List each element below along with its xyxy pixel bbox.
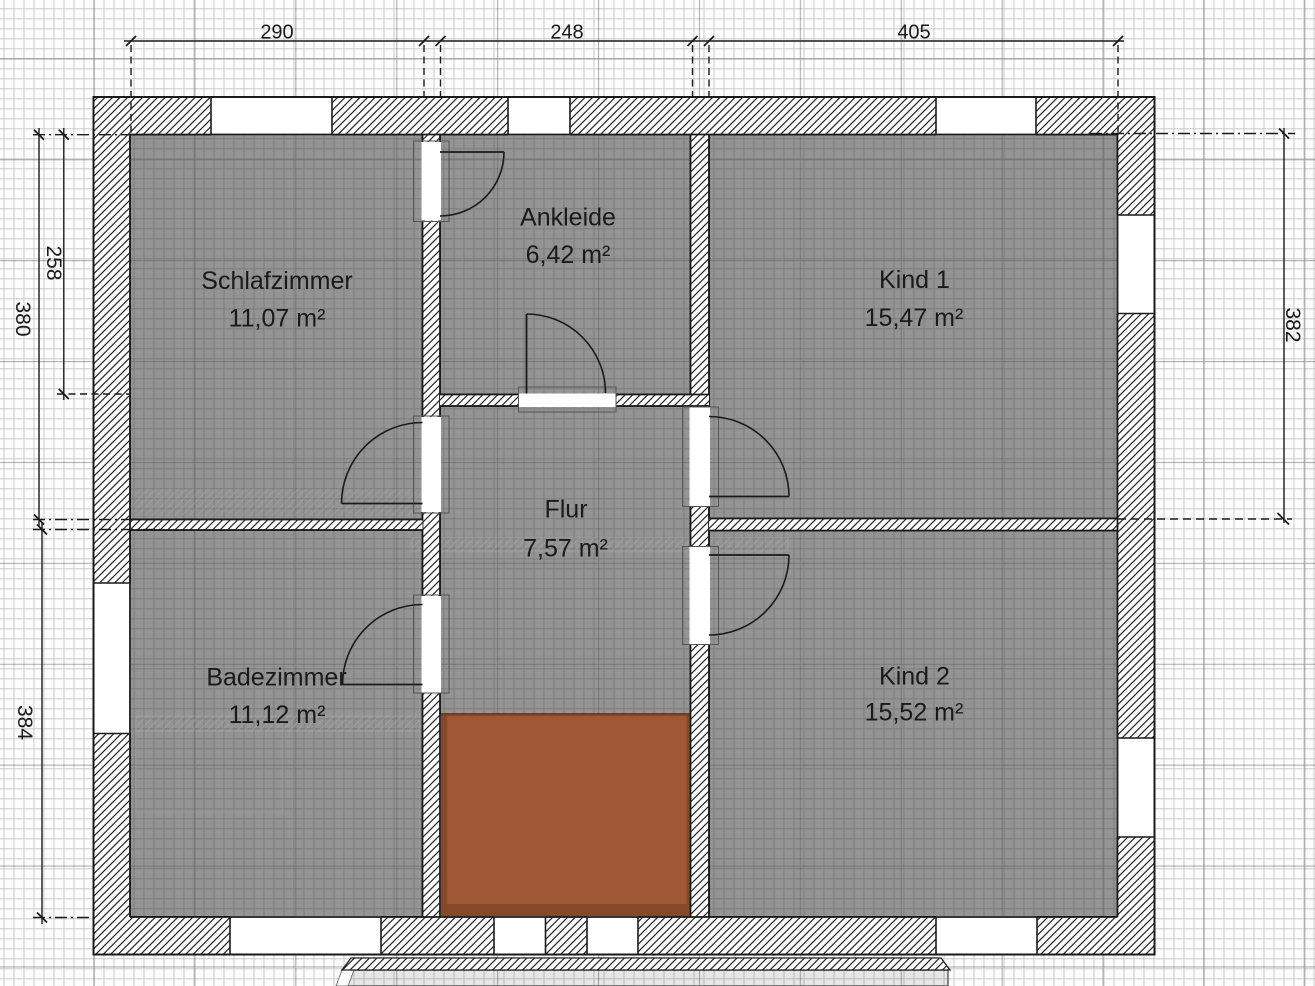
svg-text:Badezimmer: Badezimmer: [206, 664, 346, 692]
svg-text:Flur: Flur: [544, 496, 587, 524]
svg-text:Kind 1: Kind 1: [879, 266, 950, 294]
svg-text:7,57 m²: 7,57 m²: [523, 535, 608, 563]
svg-text:248: 248: [550, 22, 583, 44]
svg-text:11,07 m²: 11,07 m²: [229, 305, 326, 333]
svg-text:Ankleide: Ankleide: [520, 204, 616, 232]
svg-text:Kind 2: Kind 2: [879, 663, 950, 691]
svg-text:11,12 m²: 11,12 m²: [229, 701, 326, 729]
svg-text:Schlafzimmer: Schlafzimmer: [201, 267, 352, 295]
svg-text:15,52 m²: 15,52 m²: [865, 699, 964, 727]
svg-text:380: 380: [11, 301, 34, 336]
svg-text:6,42 m²: 6,42 m²: [526, 241, 611, 269]
svg-text:258: 258: [42, 245, 65, 280]
svg-text:382: 382: [1281, 307, 1304, 342]
svg-text:290: 290: [260, 22, 293, 44]
svg-text:384: 384: [13, 705, 36, 740]
svg-text:15,47 m²: 15,47 m²: [865, 304, 964, 332]
svg-text:405: 405: [897, 22, 930, 44]
